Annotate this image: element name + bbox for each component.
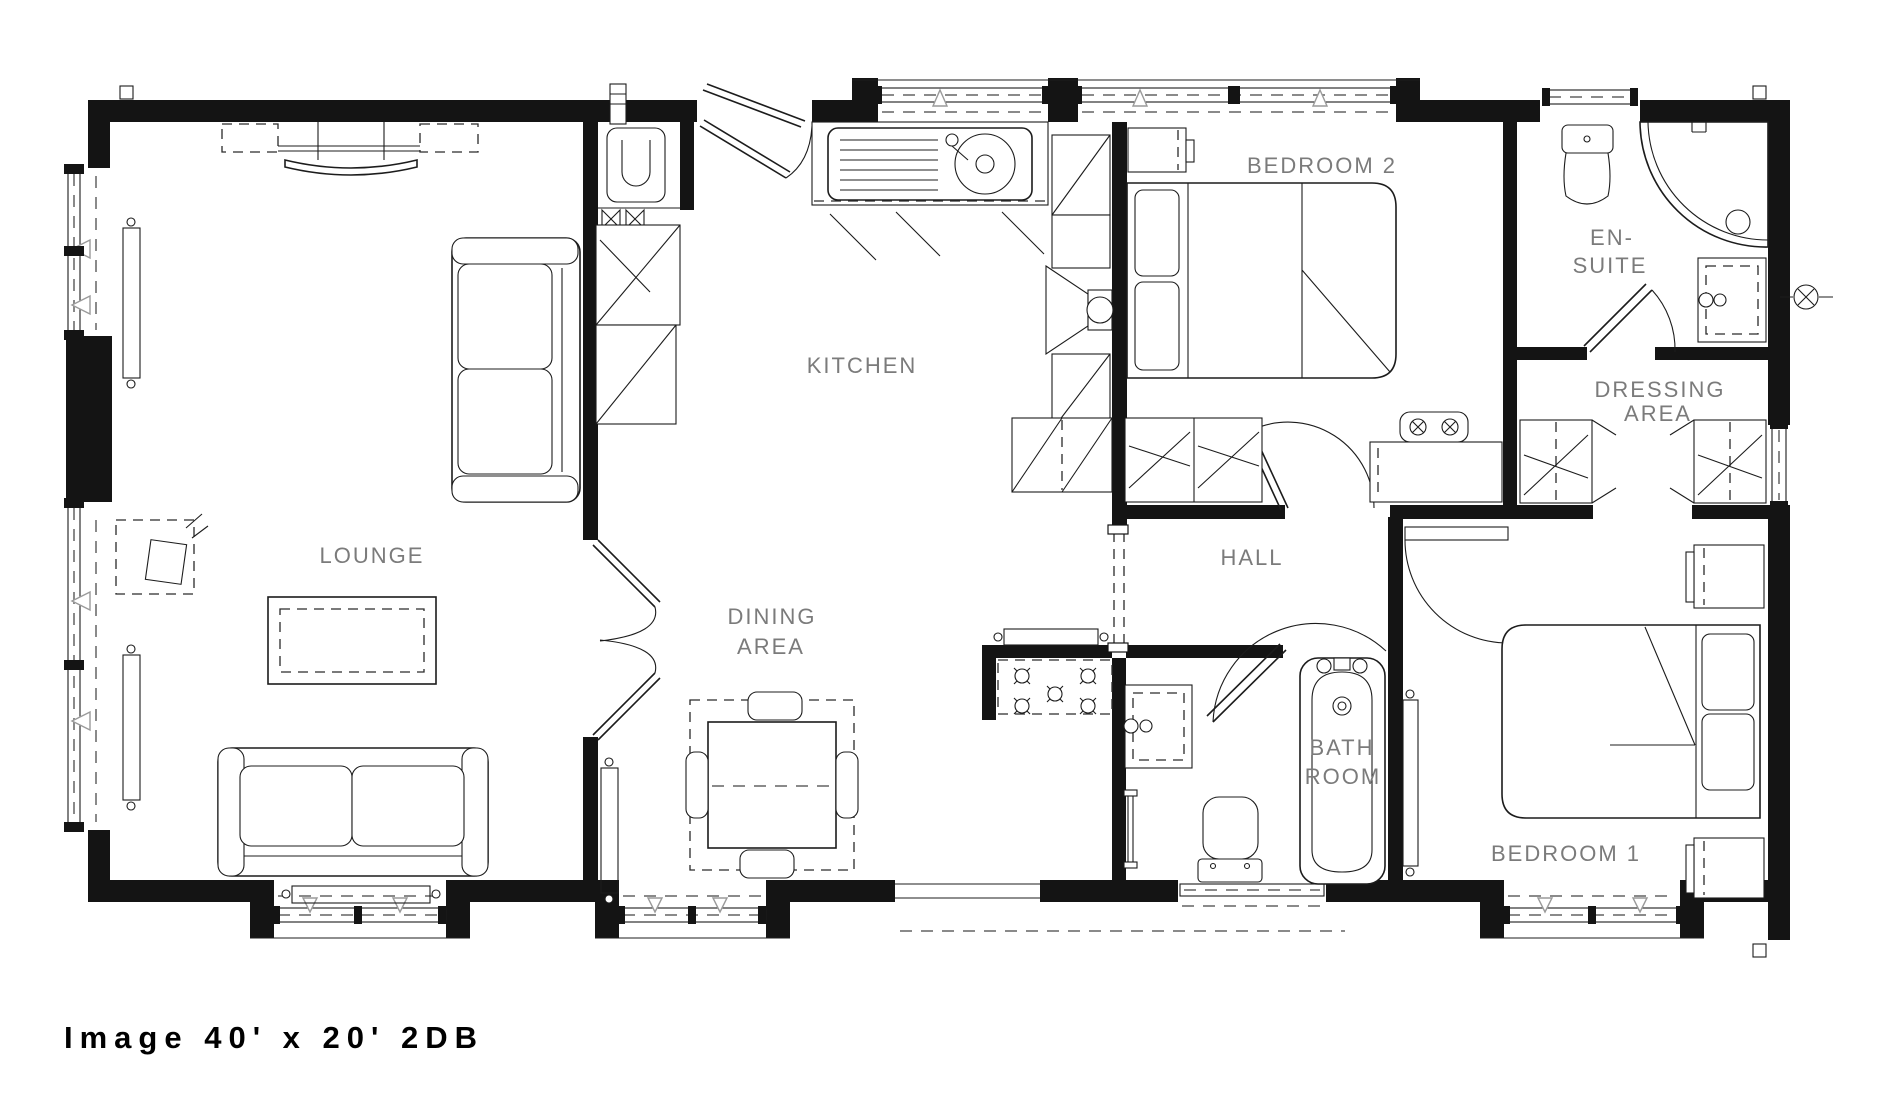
double-bed [1127,183,1396,378]
larder-cupboard [1012,418,1112,492]
kitchen-label: KITCHEN [807,353,918,378]
ensuite-door [1584,284,1675,352]
bedroom2-door [1245,422,1374,510]
pillow-icon [1702,714,1754,790]
ensuite-label-line2: SUITE [1573,253,1648,278]
basin-icon [1698,258,1766,342]
tap-icon [1353,659,1367,673]
toilet-icon [1198,797,1262,882]
floorplan-canvas: LOUNGE KITCHEN DINING AREA BEDROOM 2 EN-… [0,0,1890,1109]
radiator [994,629,1108,645]
curved-tv-icon [285,160,417,175]
dining-furniture [601,692,858,903]
bedroom1-door [1405,527,1508,643]
bedside-cabinet [1686,838,1764,898]
corner-table-with-lamp [116,514,208,594]
hall-label: HALL [1220,545,1283,570]
double-bed [1502,625,1760,818]
wardrobe [1125,418,1262,502]
dining-label-line1: DINING [728,604,817,629]
tap-icon [1124,719,1138,733]
radiator [123,645,140,810]
dining-chair [748,692,802,720]
hall-items [994,629,1112,714]
dining-chair [740,850,794,878]
tap-icon [946,134,958,146]
dressing-furniture [1520,420,1766,503]
lounge-dining-double-doors [593,540,660,740]
tv-unit [222,122,478,175]
bedroom1-label: BEDROOM 1 [1491,841,1641,866]
wardrobe [1670,420,1766,503]
tall-units-left [596,225,680,424]
dressing-table-and-stool [1370,412,1502,502]
bedside-cabinet [1686,545,1764,608]
two-seat-sofa [452,238,580,502]
tap-icon [1699,293,1713,307]
bedroom2-label: BEDROOM 2 [1247,153,1397,178]
floorplan-drawing: LOUNGE KITCHEN DINING AREA BEDROOM 2 EN-… [0,0,1890,1109]
extractor-icon [1046,266,1088,354]
vent-square-icon [120,86,133,99]
ensuite-label-line1: EN- [1590,225,1634,250]
airing-cupboard [998,660,1112,714]
radiator [1403,690,1418,876]
dining-chair [686,752,708,818]
shower-drain-icon [1726,210,1750,234]
three-seat-sofa [218,748,488,876]
vent-square-icon [1753,944,1766,957]
tap-icon [1317,659,1331,673]
lounge-label: LOUNGE [320,543,425,568]
vent-square-icon [1753,86,1766,99]
plan-title: Image 40' x 20' 2DB [64,1020,484,1055]
pillow-icon [1135,282,1179,370]
tall-units-right [1046,135,1113,430]
dining-label-line2: AREA [737,634,805,659]
basin-icon [1124,685,1192,768]
quadrant-shower-icon [1640,122,1768,247]
bathroom-label-line2: ROOM [1305,764,1381,789]
bathroom-label-line1: BATH [1309,735,1374,760]
lounge-furniture [116,122,580,903]
pillow-icon [1702,634,1754,710]
open-passage-lines [1114,532,1124,645]
kitchen-furniture [596,84,1113,492]
dressing-label-line1: DRESSING [1595,377,1726,402]
dressing-label-line2: AREA [1624,401,1692,426]
radiator [123,218,140,388]
bedside-cabinet [1128,128,1194,172]
bedroom2-furniture [1125,128,1502,502]
dining-table [690,700,854,870]
toilet-icon [1562,125,1613,204]
dining-chair [836,752,858,818]
coffee-table [268,597,436,684]
wardrobe [1520,420,1616,503]
pillow-icon [1135,190,1179,276]
